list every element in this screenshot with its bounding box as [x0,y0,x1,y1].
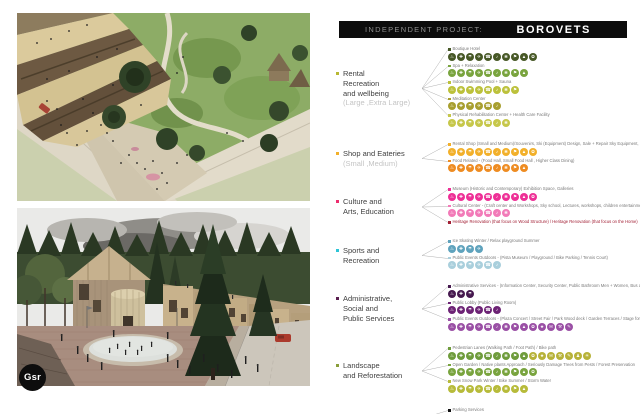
program-icon: ⚑ [511,164,519,172]
program-icon: ☂ [466,148,474,156]
program-icon: ▲ [520,385,528,393]
category-rows: Ice Skating Winter / Relax playground Su… [448,239,636,272]
program-row-label: Rental Shop (Small and Medium)/Souvenirs… [453,142,640,147]
category-label: Sports and Recreation [343,246,379,266]
street-level-render [17,208,310,386]
category-rows: Administrative Services - (Information C… [448,284,640,334]
program-icon: ♨ [448,261,456,269]
category-rows: Rental Shop (Small and Medium)/Souvenirs… [448,142,640,175]
program-row-header: Museum (Historic and Contemporary) Exhib… [448,187,640,192]
program-icon-row: ♨✚☂✈☎♪❀⚑ [448,86,636,95]
category-bullet [336,200,339,203]
program-icon-row: ♨✚☂✈☎♪ [448,306,640,315]
program-icon: ✚ [457,306,465,314]
program-icon: ♨ [448,119,456,127]
program-icon: ✈ [475,86,483,94]
program-row-header: Spa + Relaxation [448,64,636,69]
row-bullet [448,285,451,288]
program-icon: ✚ [457,261,465,269]
program-row-header: Indoor Swimming Pool + Sauna [448,80,636,85]
program-icon: ☂ [466,119,474,127]
program-row-header: Cultural Center - (Craft center and Work… [448,204,640,209]
program-icon: ♨ [448,53,456,61]
program-icon: ✚ [457,352,465,360]
program-icon: ▲ [520,69,528,77]
program-icon: ☎ [484,148,492,156]
program-icon: ▲ [520,368,528,376]
program-icon: ❀ [502,385,510,393]
row-bullet [448,98,451,101]
program-icon: ✚ [457,69,465,77]
program-icon: ♨ [448,148,456,156]
program-icon: ❀ [502,119,510,127]
program-row-header: Rental Shop (Small and Medium)/Souvenirs… [448,142,640,147]
connector-svg [422,142,448,175]
connector-lines [422,47,448,130]
row-bullet [448,160,451,163]
program-icon: ☂ [466,368,474,376]
program-icon: ▲ [520,148,528,156]
program-icon: ❀ [502,209,510,217]
program-row-label: Meditation Center [453,97,486,102]
program-row: Food Related - (Food Hall, Small Food Ha… [448,159,640,174]
program-icon: ☂ [466,323,474,331]
row-bullet [448,240,451,243]
program-row: Physical Rehabilitation Center + Health … [448,113,636,128]
program-row-label: Museum (Historic and Contemporary) Exhib… [453,187,574,192]
project-header-label: INDEPENDENT PROJECT: [365,25,483,34]
category-bullet [336,364,339,367]
program-icon: ✎ [565,323,573,331]
program-row-label: Food Related - (Food Hall, Small Food Ha… [453,159,575,164]
program-icon: ✈ [475,69,483,77]
program-icon: ▲ [520,352,528,360]
program-row-header: New Snow Park Winter / Bike Summer / Sto… [448,379,636,384]
legend-category: UndergroundParking Services⊟P [336,408,636,414]
program-icon: ☎ [484,53,492,61]
program-icon: ♨ [448,290,456,298]
program-icon: ♪ [493,385,501,393]
program-icon-row: ♨✚☂✈☎♪ [448,102,636,111]
category-label: Culture and Arts, Education [343,197,394,217]
category-text: Sports and Recreation [343,246,379,266]
row-bullet [448,48,451,51]
program-row-label: Pedestrian Lanes (Walking Path / Foot Pa… [453,346,557,351]
program-icon: ♪ [493,164,501,172]
program-icon: ❀ [502,86,510,94]
row-bullet [448,409,451,412]
gsr-logo: Gsr [19,364,46,391]
program-icon: ❀ [502,164,510,172]
program-icon: ♪ [493,148,501,156]
row-bullet [448,205,451,208]
program-icon: ☂ [466,261,474,269]
project-header-bar: INDEPENDENT PROJECT: BOROVETS [339,21,627,38]
row-bullet [448,347,451,350]
program-icon: ✚ [457,368,465,376]
program-icon: ⚑ [511,86,519,94]
program-icon: ❀ [502,53,510,61]
connector-svg [422,408,448,414]
category-sublabel: (Small ,Medium) [343,159,405,169]
program-icon: ✈ [475,164,483,172]
program-icon: ❀ [502,323,510,331]
row-bullet [448,221,451,224]
row-bullet [448,188,451,191]
street-render-illustration [17,208,310,386]
legend-category: Shop and Eateries(Small ,Medium)Rental S… [336,142,636,175]
connector-lines [422,142,448,175]
program-icon: ✚ [457,290,465,298]
program-icon: ♪ [493,323,501,331]
category-text: Culture and Arts, Education [343,197,394,217]
category-text: Rental Recreation and wellbeing(Large ,E… [343,69,410,108]
program-icon: ☂ [466,209,474,217]
program-icon: ▲ [520,323,528,331]
program-icon: ☂ [466,306,474,314]
connector-svg [422,187,448,227]
connector-svg [422,346,448,396]
program-icon: ✉ [547,323,555,331]
program-row-label: Public Lobby (Public Living Room) [453,301,517,306]
program-icon: ✈ [475,193,483,201]
category-label-block: Shop and Eateries(Small ,Medium) [336,149,422,169]
program-icon: ✉ [547,352,555,360]
program-icon-row: ♨✚☂✈☎♪❀⚑▲✿★✉⚒✎♟☀ [448,352,636,361]
category-bullet [336,72,339,75]
program-row-label: Spa + Relaxation [453,64,485,69]
program-row-label: Ice Skating Winter / Relax playground Su… [453,239,540,244]
program-icon: ✚ [457,102,465,110]
program-icon: ✈ [475,352,483,360]
program-icon: ♪ [493,209,501,217]
program-row-header: Heritage Renovation (that focus on Wood … [448,220,640,225]
program-row-label: Public Events Outdoors - (Pista Museum /… [453,256,608,261]
program-icon: ☂ [466,193,474,201]
program-row-label: Open Garden / Native plants Approach / S… [453,363,635,368]
program-icon: ❀ [502,69,510,77]
program-icon: ✈ [475,368,483,376]
program-icon: ✈ [475,385,483,393]
category-rows: Boutique Hotel♨✚☂✈☎♪❀⚑▲✿Spa + Relaxation… [448,47,636,130]
row-bullet [448,114,451,117]
category-sublabel: (Large ,Extra Large) [343,98,410,108]
program-row: Parking Services⊟P [448,408,636,414]
legend-category: Rental Recreation and wellbeing(Large ,E… [336,47,636,130]
row-bullet [448,65,451,68]
program-icon-row: ♨✚☂✈☎♪❀⚑▲ [448,385,636,394]
program-icon: ✚ [457,385,465,393]
program-icon: ✈ [475,306,483,314]
program-icon: ❀ [502,193,510,201]
category-label: Rental Recreation and wellbeing [343,69,410,98]
presentation-board: Gsr INDEPENDENT PROJECT: BOROVETS Rental… [0,0,640,414]
program-icon: ☂ [466,69,474,77]
category-bullet [336,249,339,252]
program-row-label: Physical Rehabilitation Center + Health … [453,113,550,118]
program-row-header: Parking Services [448,408,636,413]
program-icon: ⚑ [511,352,519,360]
category-text: Administrative, Social and Public Servic… [343,294,394,323]
program-icon-row: ♨✚☂✈☎♪❀ [448,209,640,218]
program-row-header: Ice Skating Winter / Relax playground Su… [448,239,636,244]
program-icon: ✎ [565,352,573,360]
program-row-label: Heritage Renovation (that focus on Wood … [453,220,638,225]
program-icon: ♨ [448,164,456,172]
category-label: Landscape and Reforestation [343,361,402,381]
program-icon: ☂ [466,385,474,393]
program-icon: ☎ [484,368,492,376]
program-icon: ⚑ [511,368,519,376]
program-icon: ✚ [457,86,465,94]
program-row: Meditation Center♨✚☂✈☎♪ [448,97,636,112]
program-icon-row: ♨✚☂✈☎♪❀⚑▲✿ [448,368,636,377]
program-icon: ☎ [484,352,492,360]
program-icon: ♨ [448,323,456,331]
row-bullet [448,380,451,383]
program-icon: ♟ [574,352,582,360]
category-rows: Museum (Historic and Contemporary) Exhib… [448,187,640,227]
legend-category: Sports and RecreationIce Skating Winter … [336,239,636,272]
program-icon: ✚ [457,148,465,156]
program-icon: ✚ [457,53,465,61]
row-bullet [448,257,451,260]
program-icon: ❀ [502,148,510,156]
program-icon: ☎ [484,102,492,110]
program-row-label: New Snow Park Winter / Bike Summer / Sto… [453,379,552,384]
program-row-label: Cultural Center - (Craft center and Work… [453,204,640,209]
program-icon: ☀ [583,352,591,360]
program-icon: ☂ [466,164,474,172]
program-icon: ♪ [493,193,501,201]
program-row-header: Meditation Center [448,97,636,102]
program-icon: ⚑ [511,385,519,393]
program-icon: ▲ [520,164,528,172]
program-row: Rental Shop (Small and Medium)/Souvenirs… [448,142,640,157]
connector-lines [422,187,448,227]
aerial-site-render [17,13,310,201]
program-row: Public Events Outdoors - (Pista Museum /… [448,256,636,271]
program-row: Ice Skating Winter / Relax playground Su… [448,239,636,254]
legend-category: Culture and Arts, EducationMuseum (Histo… [336,187,636,227]
connector-svg [422,239,448,272]
program-icon: ♪ [493,53,501,61]
program-icon: ♨ [448,352,456,360]
program-icon: ☎ [484,164,492,172]
program-icon: ✚ [457,209,465,217]
program-icon: ☂ [466,245,474,253]
program-icon: ✚ [457,323,465,331]
program-icon: ☎ [484,119,492,127]
program-row: Indoor Swimming Pool + Sauna♨✚☂✈☎♪❀⚑ [448,80,636,95]
legend-category: Administrative, Social and Public Servic… [336,284,636,334]
program-icon: ♨ [448,193,456,201]
program-icon: ♨ [448,385,456,393]
program-icon: ⚑ [511,53,519,61]
program-row-header: Public Events Outdoors - (Plaza Concert … [448,317,640,322]
row-bullet [448,302,451,305]
program-icon: ♨ [448,69,456,77]
row-bullet [448,364,451,367]
program-icon: ✚ [457,164,465,172]
connector-lines [422,239,448,272]
program-icon: ☎ [484,209,492,217]
program-row-label: Boutique Hotel [453,47,480,52]
program-icon: ✿ [529,368,537,376]
program-icon: ✈ [475,148,483,156]
category-bullet [336,152,339,155]
program-icon: ♨ [448,86,456,94]
program-icon: ⚒ [556,352,564,360]
program-icon: ✿ [529,323,537,331]
program-icon: ♪ [493,352,501,360]
program-icon: ♨ [448,306,456,314]
aerial-render-illustration [17,13,310,201]
program-row-header: Public Events Outdoors - (Pista Museum /… [448,256,636,261]
row-bullet [448,81,451,84]
program-row: Boutique Hotel♨✚☂✈☎♪❀⚑▲✿ [448,47,636,62]
program-icon: ✈ [475,102,483,110]
category-rows: Parking Services⊟P [448,408,636,414]
program-icon: ❀ [502,368,510,376]
legend: Rental Recreation and wellbeing(Large ,E… [336,47,636,414]
program-icon: ♨ [448,245,456,253]
program-icon: ☂ [466,352,474,360]
program-icon-row: ♨✚☂✈☎♪❀ [448,119,636,128]
program-icon: ▲ [520,193,528,201]
program-icon: ⚑ [511,193,519,201]
program-icon: ♪ [493,368,501,376]
program-icon: ♨ [448,102,456,110]
program-icon: ☎ [484,261,492,269]
program-icon: ✿ [529,352,537,360]
program-icon: ✚ [457,119,465,127]
program-row: Heritage Renovation (that focus on Wood … [448,220,640,225]
program-icon: ✈ [475,209,483,217]
program-icon-row: ♨✚☂✈☎♪❀⚑▲✿ [448,193,640,202]
program-icon: ⚑ [511,69,519,77]
program-icon: ☂ [466,53,474,61]
program-row-label: Parking Services [453,408,484,413]
connector-lines [422,346,448,396]
program-row-header: Food Related - (Food Hall, Small Food Ha… [448,159,640,164]
program-row: Open Garden / Native plants Approach / S… [448,363,636,378]
category-label-block: Sports and Recreation [336,246,422,266]
program-icon: ❀ [502,352,510,360]
legend-category: Landscape and ReforestationPedestrian La… [336,346,636,396]
program-row-label: Administrative Services - (Information C… [453,284,640,289]
program-icon: ✚ [457,193,465,201]
program-icon: ✚ [457,245,465,253]
category-label: Administrative, Social and Public Servic… [343,294,394,323]
program-row-header: Open Garden / Native plants Approach / S… [448,363,636,368]
program-icon: ★ [538,323,546,331]
program-row-header: Pedestrian Lanes (Walking Path / Foot Pa… [448,346,636,351]
category-bullet [336,297,339,300]
program-icon: ⚑ [511,148,519,156]
program-row: New Snow Park Winter / Bike Summer / Sto… [448,379,636,394]
connector-lines [422,408,448,414]
category-rows: Pedestrian Lanes (Walking Path / Foot Pa… [448,346,636,396]
program-row-label: Public Events Outdoors - (Plaza Concert … [453,317,640,322]
gsr-logo-text: Gsr [24,372,41,383]
program-icon-row: ♨✚☂✈☎♪❀⚑▲ [448,164,640,173]
program-row: Cultural Center - (Craft center and Work… [448,204,640,219]
program-icon: ✿ [529,193,537,201]
program-icon: ✈ [475,323,483,331]
connector-lines [422,284,448,334]
program-row-header: Administrative Services - (Information C… [448,284,640,289]
program-icon: ✿ [529,53,537,61]
program-icon-row: ♨✚☂✈☎♪ [448,261,636,270]
program-row: Spa + Relaxation♨✚☂✈☎♪❀⚑▲ [448,64,636,79]
connector-svg [422,284,448,334]
program-icon: ⚑ [511,323,519,331]
program-icon: ✈ [475,245,483,253]
category-label: Shop and Eateries [343,149,405,159]
program-row: Administrative Services - (Information C… [448,284,640,299]
program-icon: ✈ [475,53,483,61]
category-label-block: Administrative, Social and Public Servic… [336,294,422,323]
program-icon-row: ♨✚☂✈☎♪❀⚑▲✿ [448,53,636,62]
program-icon: ☂ [466,290,474,298]
program-icon-row: ♨✚☂✈☎♪❀⚑▲✿ [448,148,640,157]
program-icon: ♪ [493,69,501,77]
program-row-header: Public Lobby (Public Living Room) [448,301,640,306]
category-label-block: Rental Recreation and wellbeing(Large ,E… [336,69,422,108]
program-icon: ☎ [484,69,492,77]
program-icon: ▲ [520,53,528,61]
program-icon: ☎ [484,86,492,94]
program-row-header: Physical Rehabilitation Center + Health … [448,113,636,118]
category-text: Landscape and Reforestation [343,361,402,381]
program-row-header: Boutique Hotel [448,47,636,52]
program-icon: ♪ [493,261,501,269]
program-row-label: Indoor Swimming Pool + Sauna [453,80,512,85]
program-icon: ✈ [475,261,483,269]
program-icon: ☎ [484,306,492,314]
program-icon: ☂ [466,86,474,94]
program-icon: ♪ [493,102,501,110]
project-title: BOROVETS [516,24,591,36]
program-row: Public Events Outdoors - (Plaza Concert … [448,317,640,332]
category-text: Shop and Eateries(Small ,Medium) [343,149,405,169]
program-icon-row: ♨✚☂✈ [448,245,636,254]
connector-svg [422,47,448,130]
program-icon: ☎ [484,385,492,393]
program-icon-row: ♨✚☂ [448,290,640,299]
program-icon: ♨ [448,368,456,376]
program-row: Public Lobby (Public Living Room)♨✚☂✈☎♪ [448,301,640,316]
row-bullet [448,143,451,146]
program-row: Pedestrian Lanes (Walking Path / Foot Pa… [448,346,636,361]
program-icon-row: ♨✚☂✈☎♪❀⚑▲✿★✉⚒✎ [448,323,640,332]
program-icon: ✿ [529,148,537,156]
program-icon: ♨ [448,209,456,217]
program-icon: ☎ [484,193,492,201]
program-row: Museum (Historic and Contemporary) Exhib… [448,187,640,202]
program-icon: ♪ [493,306,501,314]
category-label-block: Culture and Arts, Education [336,197,422,217]
row-bullet [448,318,451,321]
program-icon: ★ [538,352,546,360]
program-icon: ☂ [466,102,474,110]
program-icon: ⚒ [556,323,564,331]
program-icon: ♪ [493,119,501,127]
program-icon: ♪ [493,86,501,94]
program-icon: ✈ [475,119,483,127]
category-label-block: Landscape and Reforestation [336,361,422,381]
